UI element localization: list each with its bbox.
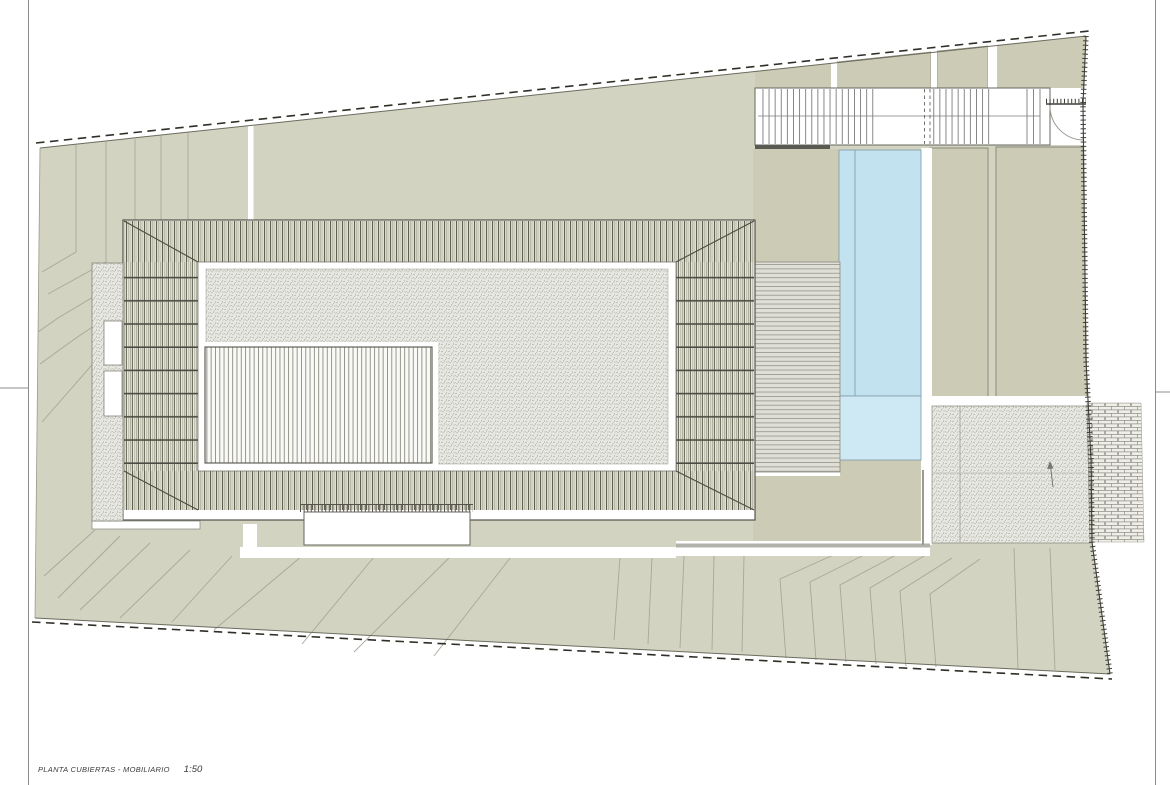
skylight-niche-1 bbox=[104, 321, 122, 365]
west-gravel-strip bbox=[92, 263, 123, 521]
gravel-terrace-area bbox=[932, 406, 1090, 543]
plan-title-label: PLANTA CUBIERTAS - MOBILIARIO bbox=[38, 765, 170, 774]
deck-steps bbox=[753, 262, 840, 472]
pool-lower bbox=[839, 396, 921, 460]
terrace-band-west bbox=[240, 547, 676, 558]
bed-east-of-pool bbox=[930, 148, 988, 398]
pool bbox=[839, 150, 921, 460]
bed-east-of-pergola bbox=[753, 149, 839, 262]
bed-far-east bbox=[996, 147, 1087, 400]
roof-plan-svg bbox=[0, 0, 1170, 785]
path-north-strip bbox=[248, 124, 254, 221]
gap-beds-terrace bbox=[921, 396, 1090, 407]
bed-upper-1 bbox=[755, 63, 831, 88]
title-block: PLANTA CUBIERTAS - MOBILIARIO 1:50 bbox=[38, 764, 202, 775]
stair-flight-2 bbox=[933, 89, 993, 144]
bed-upper-3 bbox=[937, 46, 988, 88]
pergola-roof bbox=[123, 220, 755, 520]
path-above-stair-2 bbox=[931, 48, 937, 88]
gravel-terrace-east bbox=[932, 406, 1090, 543]
skylight-ribbed-panel bbox=[205, 347, 432, 463]
stair-flight-1 bbox=[758, 89, 878, 144]
terrace-band-east bbox=[676, 541, 930, 556]
drawing-sheet: PLANTA CUBIERTAS - MOBILIARIO 1:50 bbox=[0, 0, 1170, 785]
skylight-niche-2 bbox=[104, 371, 122, 416]
cobble-paving bbox=[1087, 403, 1144, 542]
stair-retaining-bar bbox=[755, 145, 830, 149]
courtyard-southeast-a bbox=[753, 476, 839, 542]
bench-body bbox=[304, 512, 470, 545]
west-step bbox=[92, 521, 200, 529]
terrace-gray-strip bbox=[676, 544, 930, 548]
terrace-step-stub bbox=[243, 524, 257, 548]
pergola-louvres-east bbox=[676, 262, 754, 471]
courtyard-southeast-b bbox=[839, 460, 922, 542]
plan-scale-label: 1:50 bbox=[184, 764, 203, 775]
pergola-louvres-west bbox=[124, 262, 198, 471]
pergola-slats-north bbox=[124, 221, 754, 262]
path-above-stair-3 bbox=[988, 43, 997, 88]
pool-upper bbox=[839, 150, 921, 396]
